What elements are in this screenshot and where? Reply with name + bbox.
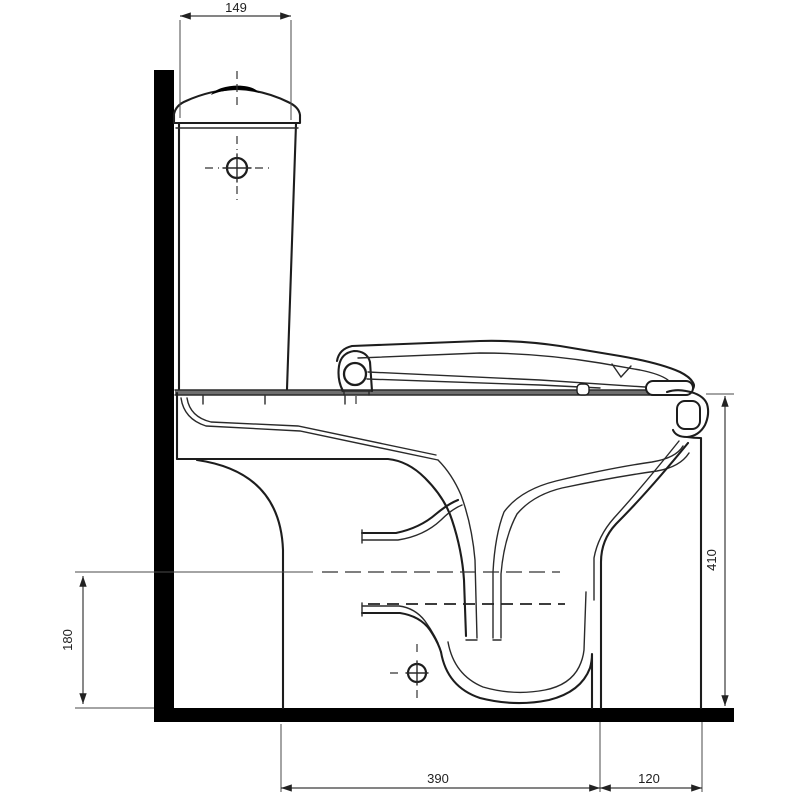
dim-label-base-main: 390 <box>427 771 449 786</box>
bowl-back-pedestal <box>177 393 438 708</box>
seat-front-section <box>646 381 693 395</box>
toilet-technical-drawing: 149 410 180 390 120 <box>0 0 800 800</box>
outlet-spigot <box>362 500 462 652</box>
floor-datum <box>154 708 734 722</box>
dimension-rim-height: 410 <box>704 394 734 706</box>
dim-label-rim-height: 410 <box>704 549 719 571</box>
dimension-outlet-height: 180 <box>60 576 154 708</box>
center-mark-icon <box>205 136 269 200</box>
bowl-interior <box>177 446 689 640</box>
bowl-nose <box>667 390 708 708</box>
dim-label-outlet-height: 180 <box>60 629 75 651</box>
dimension-tank-width: 149 <box>180 0 291 120</box>
center-mark-icon <box>390 644 428 703</box>
dimension-base-depths: 390 120 <box>281 722 702 792</box>
seat-bumper <box>577 384 589 395</box>
flush-button[interactable] <box>211 86 259 95</box>
cistern-lid <box>174 89 300 128</box>
dim-label-tank-width: 149 <box>225 0 247 15</box>
dim-label-base-front: 120 <box>638 771 660 786</box>
trap-u-bend <box>441 441 688 708</box>
wall-datum <box>154 70 174 722</box>
drawing-canvas: 149 410 180 390 120 <box>0 0 800 800</box>
bowl-rim-deck <box>175 390 667 404</box>
seat-hinge <box>339 351 373 409</box>
